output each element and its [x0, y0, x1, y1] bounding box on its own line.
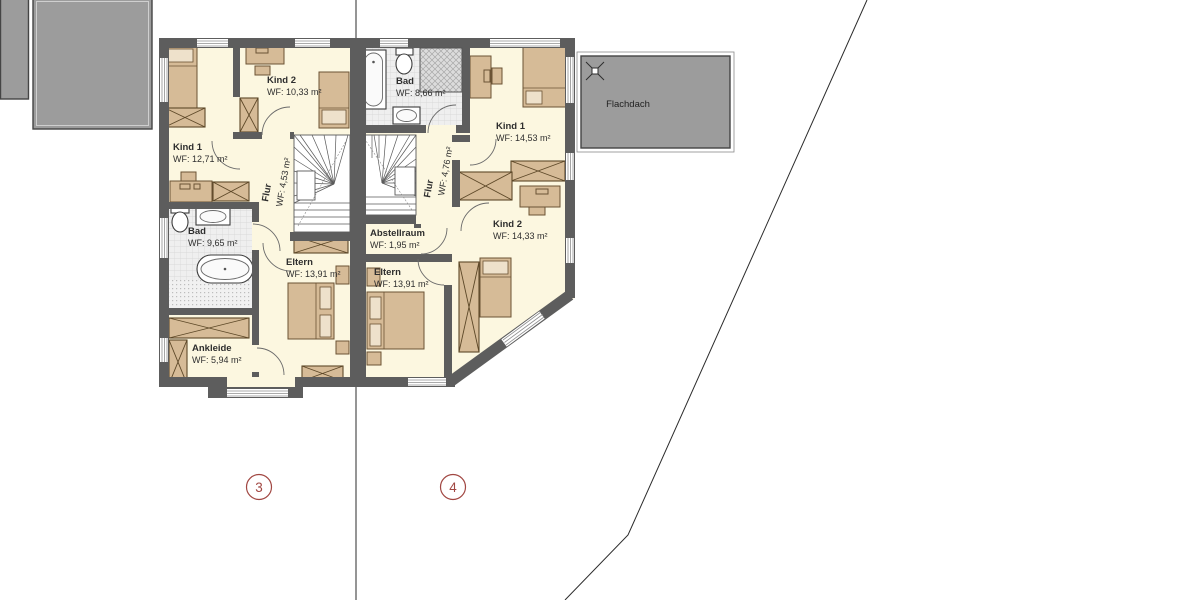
roof-strip [1, 0, 29, 99]
unit3-staircase [294, 135, 350, 232]
unit3-ankleide-area: WF: 5,94 m² [192, 355, 242, 365]
unit4-kind1-area: WF: 14,53 m² [496, 133, 551, 143]
chair [492, 68, 502, 84]
floor-plan-page: Flachdach [0, 0, 1200, 600]
unit4-abstellraum-area: WF: 1,95 m² [370, 240, 420, 250]
unit4-bad-area: WF: 8,66 m² [396, 88, 446, 98]
chair [255, 66, 270, 75]
unit3-eltern-area: WF: 13,91 m² [286, 269, 341, 279]
toilet [172, 212, 188, 232]
unit3-marker-number: 3 [255, 480, 263, 495]
unit3-kind1-label: Kind 1 [173, 142, 203, 153]
unit3-kind1-area: WF: 12,71 m² [173, 154, 228, 164]
wardrobe [511, 161, 565, 181]
desk [170, 181, 212, 202]
unit3-bad-shower-mat [169, 280, 252, 308]
installation-shaft [420, 48, 462, 92]
unit4-eltern-label: Eltern [374, 267, 401, 278]
unit3-bad-area: WF: 9,65 m² [188, 238, 238, 248]
floor-plan-canvas: Flachdach [0, 0, 1200, 600]
unit3-kind2-area: WF: 10,33 m² [267, 87, 322, 97]
wardrobe [459, 262, 479, 352]
chair [529, 207, 545, 215]
unit4-abstellraum-label: Abstellraum [370, 228, 425, 239]
wardrobe [240, 98, 258, 132]
unit4-marker-number: 4 [449, 480, 457, 495]
neighbour-roof-blocks [1, 0, 153, 129]
roof-block [33, 0, 152, 129]
nightstand [336, 341, 349, 354]
nightstand [367, 352, 381, 365]
unit4-kind2-label: Kind 2 [493, 219, 522, 230]
unit4-kind2-area: WF: 14,33 m² [493, 231, 548, 241]
wardrobe [459, 172, 512, 200]
wardrobe [169, 318, 249, 338]
unit4-bad-label: Bad [396, 76, 414, 87]
roof-label: Flachdach [606, 99, 650, 110]
wardrobe [165, 108, 205, 127]
chair [181, 172, 196, 181]
unit4-staircase [358, 135, 416, 215]
toilet [396, 54, 412, 74]
unit3-eltern-label: Eltern [286, 257, 313, 268]
unit3-bad-label: Bad [188, 226, 206, 237]
dresser [213, 182, 249, 201]
unit3-ankleide-label: Ankleide [192, 343, 232, 354]
flachdach-roof: Flachdach [577, 52, 734, 152]
unit4-kind1-label: Kind 1 [496, 121, 526, 132]
unit4-eltern-area: WF: 13,91 m² [374, 279, 429, 289]
unit3-kind2-label: Kind 2 [267, 75, 296, 86]
